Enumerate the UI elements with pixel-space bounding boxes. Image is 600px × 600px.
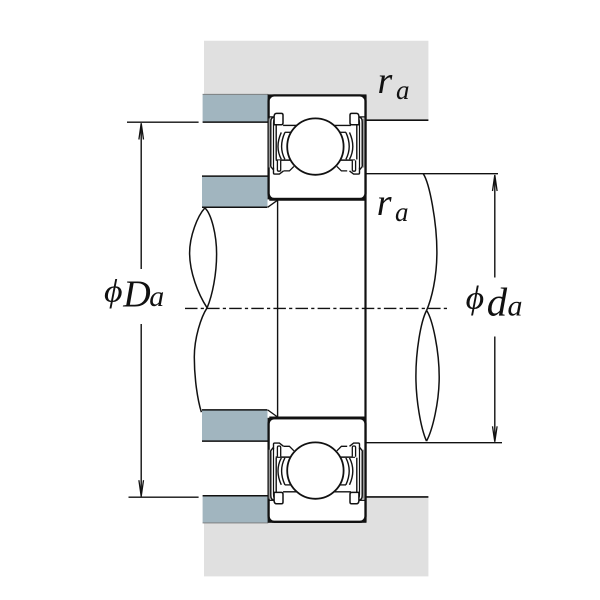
svg-text:a: a [395, 197, 409, 227]
svg-text:r: r [377, 182, 392, 224]
svg-text:a: a [149, 280, 164, 313]
svg-text:ϕ: ϕ [104, 274, 123, 309]
svg-text:ϕ: ϕ [466, 281, 485, 316]
svg-text:d: d [487, 280, 508, 325]
svg-text:D: D [122, 274, 150, 316]
svg-text:r: r [378, 60, 393, 102]
svg-text:a: a [396, 75, 410, 105]
svg-text:a: a [508, 290, 523, 323]
